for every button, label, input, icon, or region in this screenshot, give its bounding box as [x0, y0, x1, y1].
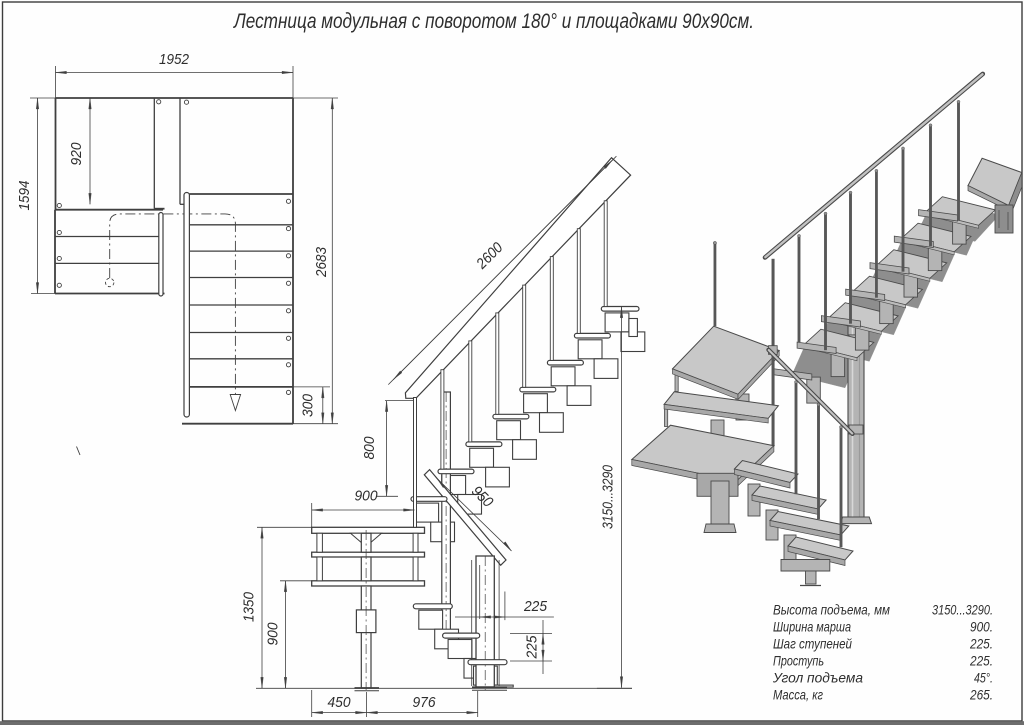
svg-text:3150...3290: 3150...3290	[600, 464, 617, 529]
svg-text:225.: 225.	[969, 636, 993, 652]
svg-text:300: 300	[300, 393, 317, 417]
svg-text:900: 900	[265, 622, 282, 646]
svg-text:Высота подъема, мм: Высота подъема, мм	[773, 602, 890, 618]
svg-text:1594: 1594	[16, 181, 33, 211]
svg-text:976: 976	[413, 694, 437, 711]
svg-text:900: 900	[355, 488, 379, 505]
svg-text:Ширина марша: Ширина марша	[773, 619, 851, 635]
svg-text:3150...3290.: 3150...3290.	[932, 602, 993, 618]
svg-text:45°.: 45°.	[974, 670, 993, 686]
svg-text:Лестница модульная с поворотом: Лестница модульная с поворотом 180° и пл…	[232, 10, 754, 33]
svg-text:265.: 265.	[969, 687, 993, 703]
svg-text:450: 450	[328, 694, 352, 711]
svg-text:Масса, кг: Масса, кг	[773, 687, 823, 703]
svg-text:Шаг ступеней: Шаг ступеней	[773, 636, 852, 652]
svg-text:225.: 225.	[969, 653, 993, 669]
svg-text:Проступь: Проступь	[773, 653, 824, 669]
svg-text:900.: 900.	[970, 619, 993, 635]
svg-text:225: 225	[524, 635, 541, 660]
svg-text:800: 800	[361, 436, 378, 460]
svg-text:920: 920	[68, 142, 85, 166]
svg-text:225: 225	[523, 598, 548, 615]
svg-text:2683: 2683	[313, 246, 330, 277]
svg-text:1350: 1350	[241, 591, 258, 622]
svg-text:Угол подъема: Угол подъема	[772, 670, 863, 686]
svg-text:1952: 1952	[159, 51, 190, 68]
